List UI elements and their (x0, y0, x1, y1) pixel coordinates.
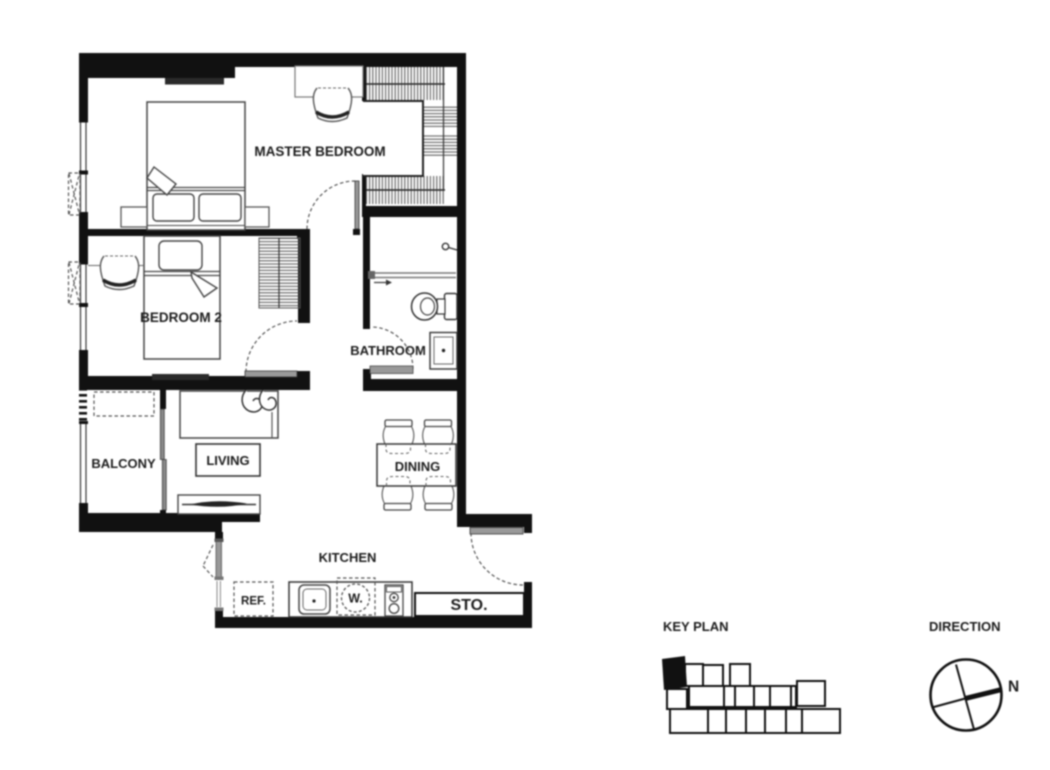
svg-text:DINING: DINING (395, 459, 441, 474)
svg-text:KEY PLAN: KEY PLAN (663, 619, 729, 634)
svg-text:DIRECTION: DIRECTION (929, 619, 1001, 634)
svg-text:STO.: STO. (450, 597, 487, 614)
svg-text:W.: W. (348, 592, 363, 606)
svg-text:BEDROOM 2: BEDROOM 2 (140, 310, 222, 325)
svg-text:REF.: REF. (241, 596, 266, 608)
svg-text:BATHROOM: BATHROOM (350, 343, 426, 358)
svg-text:KITCHEN: KITCHEN (319, 550, 377, 565)
svg-text:MASTER BEDROOM: MASTER BEDROOM (254, 144, 385, 159)
svg-text:BALCONY: BALCONY (91, 456, 156, 471)
svg-text:N: N (1008, 679, 1019, 696)
svg-text:LIVING: LIVING (206, 453, 249, 468)
